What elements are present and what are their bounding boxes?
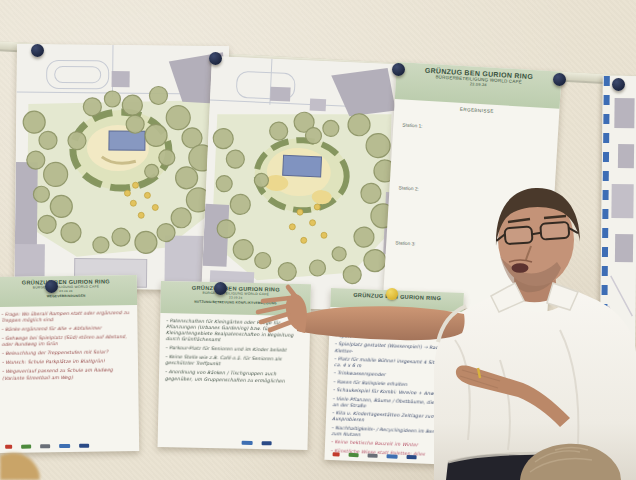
navy-logo-icon: [406, 455, 416, 459]
label-card: [596, 411, 636, 425]
push-pin-icon: [209, 52, 222, 65]
note-line: - Frage: Wo überall Rampen statt oder er…: [1, 310, 133, 324]
note-line: - Gehwege bei Spielplatz (Süd) stören au…: [2, 334, 134, 348]
blue-logo-icon: [59, 444, 70, 448]
partner-logos: [5, 442, 133, 450]
poster-section-label: WEGEVERBINDUNGEN: [0, 293, 137, 299]
flip-poster-right: GRÜNZUG BEN GURION RING - Sport - Spielp…: [324, 288, 464, 465]
flip-middle-header: GRÜNZUG BEN GURION RING BÜRGERBETEILIGUN…: [160, 281, 311, 316]
results-poster-header: GRÜNZUG BEN GURION RING BÜRGERBETEILIGUN…: [395, 62, 562, 109]
note-line: - Keine Stelle wie z.B. Café o.ä. für Se…: [165, 354, 305, 369]
playground-center: [70, 110, 171, 191]
note-line: - Bänke ergänzend für Alle + Abfalleimer: [1, 325, 133, 333]
note-line: - Patenschaften für Kleingärten oder Pfl…: [166, 318, 306, 345]
note-line: - Wunsch: Schule Parkplätze im Blattgrün…: [2, 358, 134, 366]
station-1-label: Station 1:: [402, 122, 558, 136]
green-logo-icon: [21, 445, 31, 449]
blue-logo-icon: [387, 454, 398, 458]
handwritten-notes: - Patenschaften für Kleingärten oder Pfl…: [159, 313, 310, 385]
note-line: - Anordnung von Bänken / Tischgruppen au…: [165, 370, 305, 385]
label-card: [585, 394, 632, 410]
results-poster: GRÜNZUG BEN GURION RING BÜRGERBETEILIGUN…: [383, 62, 562, 313]
push-pin-icon: [31, 44, 44, 57]
blue-text-mark: [599, 413, 633, 417]
blue-text-mark: [588, 400, 616, 403]
dark-trousers: [446, 452, 603, 480]
site-plan-middle-graphic: [201, 56, 402, 312]
hair-strands: [530, 448, 592, 472]
flip-left-header: GRÜNZUG BEN GURION RING BÜRGERBETEILIGUN…: [0, 275, 137, 307]
push-pin-icon: [392, 63, 405, 76]
handwritten-notes: - Sport - Spielplatz gestaltet (Wassersp…: [325, 307, 464, 459]
city-map-right-edge: [599, 76, 636, 428]
push-pin-icon: [45, 280, 58, 293]
site-plan-left-graphic: [14, 44, 229, 290]
flip-poster-middle: GRÜNZUG BEN GURION RING BÜRGERBETEILIGUN…: [158, 281, 311, 450]
shirt-folds: [455, 330, 578, 450]
wedding-ring: [478, 368, 480, 378]
note-line: - Parkour-Platz für Senioren und im Kind…: [166, 345, 306, 354]
station-3-label: Station 3:: [395, 240, 551, 254]
left-hand-fingers: [460, 370, 500, 388]
red-logo-icon: [5, 445, 12, 449]
gray-logo-icon: [40, 444, 50, 448]
red-logo-icon: [333, 452, 340, 456]
partner-logos: [242, 440, 302, 447]
site-plan-map-left: [14, 44, 229, 290]
note-line: - Wegeverlauf passend zu Schule am Radwe…: [2, 368, 134, 382]
navy-logo-icon: [79, 444, 89, 448]
yellow-magnet-icon: [386, 288, 398, 300]
audience-head: [520, 444, 621, 480]
photo-of-presentation-wall: GRÜNZUG BEN GURION RING BÜRGERBETEILIGUN…: [0, 0, 636, 480]
handwritten-notes: - Frage: Wo überall Rampen statt oder er…: [0, 305, 138, 382]
station-2-label: Station 2:: [398, 185, 554, 199]
wooden-object: [0, 453, 40, 480]
push-pin-icon: [553, 73, 566, 86]
blue-logo-icon: [242, 441, 253, 445]
site-plan-map-middle: [201, 56, 402, 312]
navy-logo-icon: [262, 441, 272, 445]
shirt-hem: [448, 453, 600, 462]
left-forearm: [456, 366, 570, 427]
note-line: - Beleuchtung der Treppenstufen mit Sola…: [2, 349, 134, 357]
green-logo-icon: [349, 453, 359, 457]
gray-logo-icon: [368, 454, 378, 458]
push-pin-icon: [214, 282, 227, 295]
flip-poster-left: GRÜNZUG BEN GURION RING BÜRGERBETEILIGUN…: [0, 275, 139, 453]
push-pin-icon: [612, 78, 625, 91]
